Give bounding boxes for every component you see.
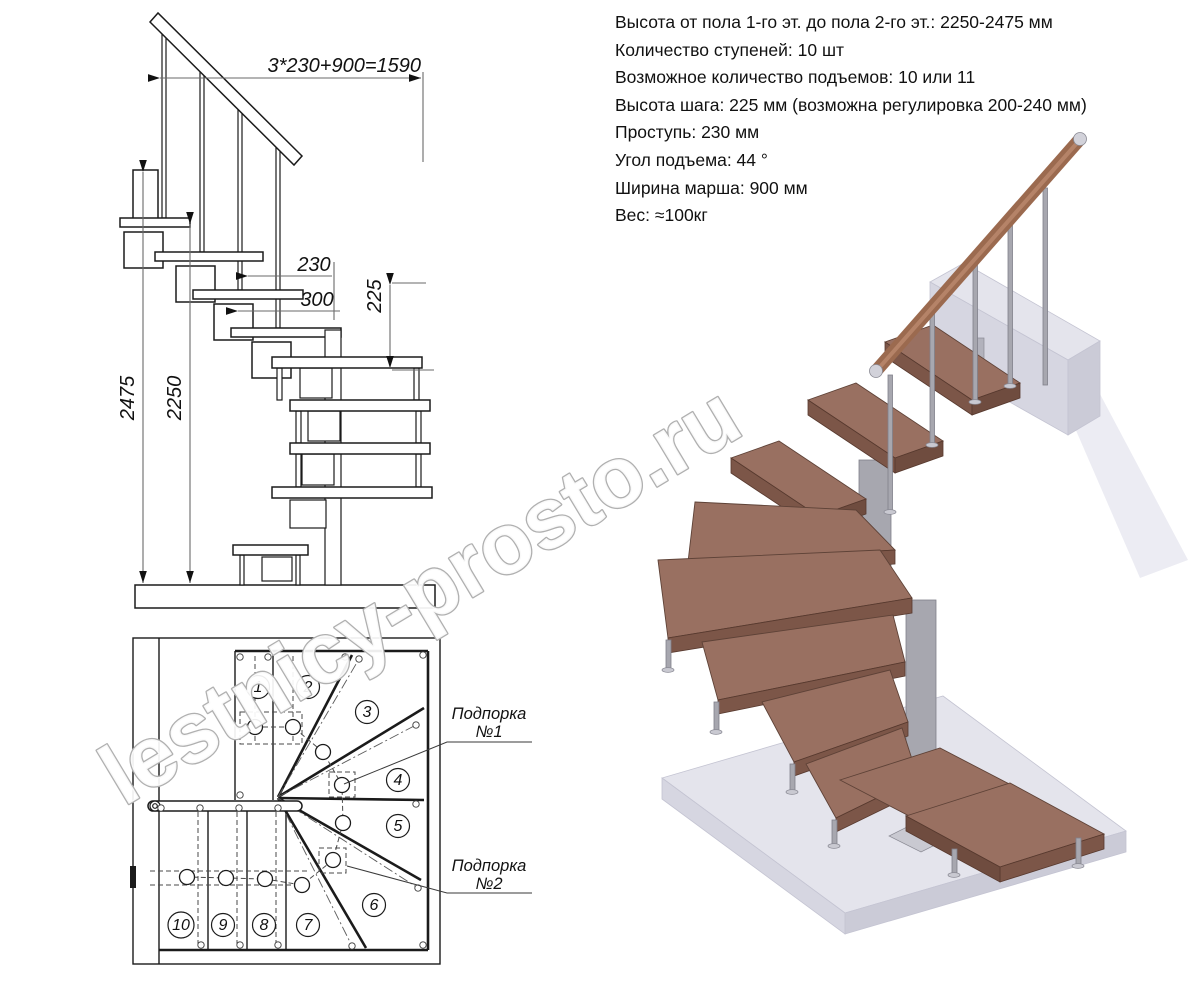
- step-number-2: 2: [303, 679, 313, 696]
- step-number-10: 10: [172, 917, 190, 934]
- dim-formula: 3*230+900=1590: [268, 55, 422, 77]
- dim-platform-300: 300: [300, 289, 333, 311]
- step-number-6: 6: [370, 897, 379, 914]
- spec-line-step-height: Высота шага: 225 мм (возможна регулировк…: [615, 92, 1180, 120]
- elevation-drawing: 3*230+900=1590 230 300 225 2475 2250: [55, 5, 467, 623]
- step-number-1: 1: [254, 679, 263, 696]
- render-handrail-end-cap: [870, 365, 883, 378]
- step-number-9: 9: [219, 917, 228, 934]
- render-handrail-top-cap: [1074, 133, 1087, 146]
- support1-label-line2: №1: [475, 723, 502, 741]
- elevation-floor-slab: [135, 585, 435, 608]
- step-number-4: 4: [394, 772, 403, 789]
- spec-line-rise-count: Возможное количество подъемов: 10 или 11: [615, 64, 1180, 92]
- elevation-wall-bracket: [133, 170, 158, 222]
- step-number-3: 3: [363, 704, 372, 721]
- step-number-7: 7: [304, 917, 314, 934]
- dim-rise-225: 225: [364, 278, 386, 313]
- support1-label-line1: Подпорка: [452, 705, 527, 723]
- dim-tread-230: 230: [296, 254, 330, 276]
- stair-3d-render: [648, 128, 1191, 973]
- step-number-5: 5: [394, 818, 403, 835]
- plan-drawing: 1 2 3 4 5 6 7 8 9 10 Подпорка №1 Подпорк…: [125, 635, 545, 991]
- stair-specification-sheet: 3*230+900=1590 230 300 225 2475 2250: [0, 0, 1191, 993]
- render-second-floor-beam: [930, 263, 1188, 578]
- dim-clear-height-2250: 2250: [164, 376, 186, 422]
- dim-total-height-2475: 2475: [117, 375, 139, 421]
- elevation-first-step: [233, 545, 308, 585]
- spec-line-height-range: Высота от пола 1-го эт. до пола 2-го эт.…: [615, 9, 1180, 37]
- spec-line-step-count: Количество ступеней: 10 шт: [615, 37, 1180, 65]
- elevation-handrail: [150, 13, 302, 165]
- support2-label-line2: №2: [475, 875, 502, 893]
- step-number-8: 8: [260, 917, 269, 934]
- render-tread-9: [808, 383, 943, 473]
- support2-label-line1: Подпорка: [452, 857, 527, 875]
